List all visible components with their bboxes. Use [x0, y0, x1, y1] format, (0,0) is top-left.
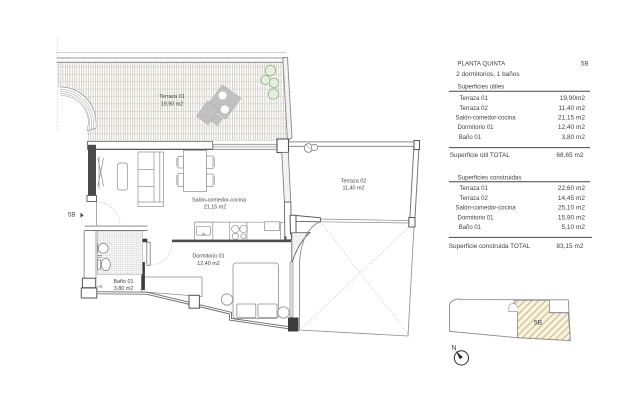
svg-text:14,45 m2: 14,45 m2 [558, 195, 585, 202]
svg-text:15,90 m2: 15,90 m2 [558, 214, 585, 221]
svg-text:3,80 m2: 3,80 m2 [114, 286, 133, 292]
svg-text:Terraza 02: Terraza 02 [460, 196, 489, 202]
svg-text:Terraza 02: Terraza 02 [341, 179, 366, 185]
svg-text:22,60 m2: 22,60 m2 [558, 185, 585, 192]
svg-text:Salón-comedor-cocina: Salón-comedor-cocina [456, 116, 517, 122]
svg-text:Superficies útiles: Superficies útiles [458, 84, 505, 91]
svg-text:Baño 01: Baño 01 [113, 279, 133, 285]
svg-text:5B: 5B [68, 213, 75, 219]
svg-text:Superficie útil TOTAL: Superficie útil TOTAL [450, 152, 510, 159]
svg-text:Superficies construidas: Superficies construidas [458, 174, 522, 181]
svg-text:5B: 5B [534, 320, 543, 327]
svg-text:Terraza 01: Terraza 01 [159, 94, 184, 100]
svg-text:Baño 01: Baño 01 [459, 225, 482, 231]
svg-text:Salón-comedor-cocina: Salón-comedor-cocina [192, 198, 246, 204]
svg-text:Dormitorio 01: Dormitorio 01 [458, 215, 495, 221]
svg-text:12,40 m2: 12,40 m2 [558, 124, 585, 131]
svg-text:Dormitorio 01: Dormitorio 01 [458, 125, 495, 131]
svg-text:Baño 01: Baño 01 [459, 135, 482, 141]
svg-text:68,65 m2: 68,65 m2 [556, 152, 583, 159]
svg-text:25,10 m2: 25,10 m2 [558, 205, 585, 212]
svg-text:Terraza 02: Terraza 02 [460, 106, 489, 112]
svg-text:N: N [452, 345, 457, 352]
svg-text:3,80 m2: 3,80 m2 [562, 134, 586, 141]
svg-text:Dormitorio 01: Dormitorio 01 [192, 254, 224, 260]
svg-text:Terraza 01: Terraza 01 [460, 186, 489, 192]
svg-text:11,40 m2: 11,40 m2 [558, 105, 585, 112]
svg-text:19,90 m2: 19,90 m2 [161, 102, 183, 108]
svg-text:11,40 m2: 11,40 m2 [342, 186, 364, 192]
svg-text:21,15 m2: 21,15 m2 [558, 115, 585, 122]
svg-text:12,40 m2: 12,40 m2 [197, 261, 219, 267]
svg-text:Terraza 01: Terraza 01 [460, 96, 489, 102]
svg-text:Superficie construida TOTAL: Superficie construida TOTAL [449, 243, 531, 250]
svg-text:5B: 5B [581, 61, 589, 68]
svg-text:Salón-comedor-cocina: Salón-comedor-cocina [456, 206, 517, 212]
svg-text:21,15 m2: 21,15 m2 [204, 205, 226, 211]
svg-text:5,10 m2: 5,10 m2 [562, 224, 586, 231]
svg-text:PLANTA QUINTA: PLANTA QUINTA [457, 61, 506, 68]
svg-text:2 dormitorios, 1 baños: 2 dormitorios, 1 baños [456, 71, 519, 78]
svg-text:83,15 m2: 83,15 m2 [556, 243, 583, 250]
svg-text:19,90m2: 19,90m2 [560, 95, 586, 102]
